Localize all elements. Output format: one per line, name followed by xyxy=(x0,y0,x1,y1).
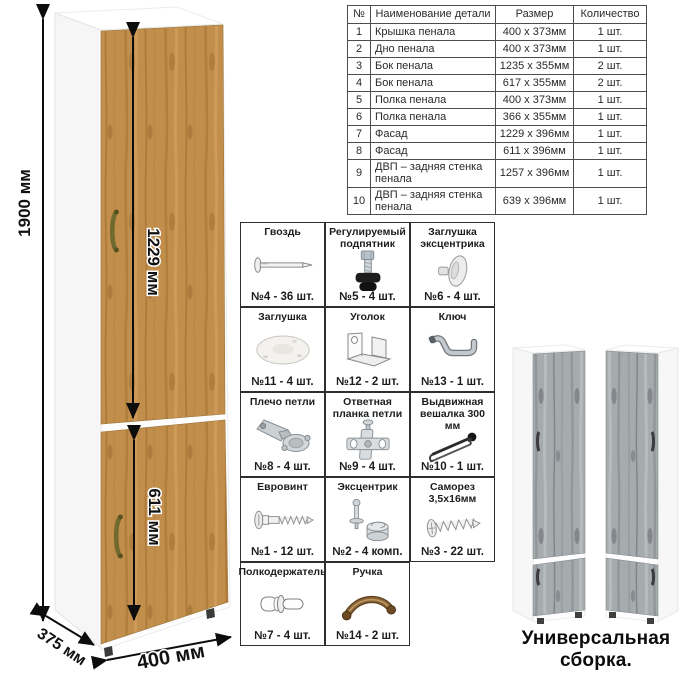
hardware-name: Ключ xyxy=(439,311,467,323)
hinge-plate-icon xyxy=(342,419,394,463)
cell-qty: 1 шт. xyxy=(574,160,647,188)
corner-bracket-icon xyxy=(340,328,396,372)
table-row: 6Полка пенала366 х 355мм1 шт. xyxy=(348,109,647,126)
table-row: 2Дно пенала400 х 373мм1 шт. xyxy=(348,41,647,58)
cabinet-side-panel xyxy=(55,13,101,648)
hardware-count: №10 - 1 шт. xyxy=(421,461,484,474)
hardware-item-cap: Заглушка №11 - 4 шт. xyxy=(240,307,325,392)
table-row: 10ДВП – задняя стенка пенала639 х 396мм1… xyxy=(348,187,647,215)
variant-cabinets xyxy=(495,338,700,638)
cell-name: ДВП – задняя стенка пенала xyxy=(371,187,496,215)
handle-knob xyxy=(118,554,123,559)
cell-number: 6 xyxy=(348,109,371,126)
hardware-count: №1 - 12 шт. xyxy=(251,546,314,559)
hardware-count: №6 - 4 шт. xyxy=(424,291,480,304)
handle-icon xyxy=(337,583,399,625)
cell-size: 400 х 373мм xyxy=(496,92,574,109)
cabinet-body xyxy=(55,7,230,657)
upper-door-label: 1229 мм xyxy=(144,228,163,296)
hardware-count: №13 - 1 шт. xyxy=(421,376,484,389)
nail-icon xyxy=(252,256,314,274)
hardware-item-shelf-pin: Полкодержатель №7 - 4 шт. xyxy=(240,562,325,646)
width-label: 400 мм xyxy=(135,640,206,674)
hardware-count: №7 - 4 шт. xyxy=(254,630,310,643)
hardware-name: Регулируемый подпятник xyxy=(328,226,407,250)
shelf-pin-icon xyxy=(255,591,311,617)
hardware-item-handle: Ручка №14 - 2 шт. xyxy=(325,562,410,646)
cell-size: 1235 х 355мм xyxy=(496,58,574,75)
col-header-size: Размер xyxy=(496,6,574,24)
cell-name: Фасад xyxy=(371,126,496,143)
table-row: 9ДВП – задняя стенка пенала1257 х 396мм1… xyxy=(348,160,647,188)
pullout-hanger-icon xyxy=(423,428,483,466)
cell-number: 3 xyxy=(348,58,371,75)
hardware-name: Уголок xyxy=(350,311,385,323)
cell-size: 400 х 373мм xyxy=(496,24,574,41)
hardware-item-euroscrew: Евровинт №1 - 12 шт. xyxy=(240,477,325,562)
table-row: 7Фасад1229 х 396мм1 шт. xyxy=(348,126,647,143)
handle-knob xyxy=(118,515,123,520)
variant-cabinet-right xyxy=(606,345,678,624)
cell-size: 611 х 396мм xyxy=(496,143,574,160)
cell-qty: 1 шт. xyxy=(574,41,647,58)
table-row: 3Бок пенала1235 х 355мм2 шт. xyxy=(348,58,647,75)
table-row: 1Крышка пенала400 х 373мм1 шт. xyxy=(348,24,647,41)
cell-qty: 1 шт. xyxy=(574,109,647,126)
hardware-count: №9 - 4 шт. xyxy=(339,461,395,474)
hardware-name: Эксцентрик xyxy=(337,481,397,493)
hardware-item-key: Ключ №13 - 1 шт. xyxy=(410,307,495,392)
cell-name: Дно пенала xyxy=(371,41,496,58)
assembly-sheet: 1900 мм 1229 мм 611 мм 375 мм 400 мм № Н… xyxy=(0,0,700,683)
hinge-arm-icon xyxy=(253,414,313,456)
cell-size: 1257 х 396мм xyxy=(496,160,574,188)
cell-qty: 1 шт. xyxy=(574,92,647,109)
hardware-count: №8 - 4 шт. xyxy=(254,461,310,474)
hardware-name: Евровинт xyxy=(257,481,308,493)
cell-number: 7 xyxy=(348,126,371,143)
hardware-name: Гвоздь xyxy=(264,226,301,238)
hardware-name: Саморез 3,5х16мм xyxy=(413,481,492,505)
cell-name: Полка пенала xyxy=(371,92,496,109)
cell-name: Полка пенала xyxy=(371,109,496,126)
cell-number: 1 xyxy=(348,24,371,41)
cell-qty: 2 шт. xyxy=(574,58,647,75)
cam-cap-icon xyxy=(430,251,476,291)
hardware-item-pullout-hanger: Выдвижная вешалка 300 мм №10 - 1 шт. xyxy=(410,392,495,477)
hardware-item-cam-cap: Заглушка эксцентрика №6 - 4 шт. xyxy=(410,222,495,307)
handle-knob xyxy=(114,248,119,253)
cell-qty: 1 шт. xyxy=(574,24,647,41)
cell-size: 639 х 396мм xyxy=(496,187,574,215)
hardware-grid: Гвоздь №4 - 36 шт. Регулируемый подпятни… xyxy=(240,222,495,646)
hardware-name: Заглушка эксцентрика xyxy=(413,226,492,250)
cam-lock-icon xyxy=(342,498,394,542)
handle-knob xyxy=(114,210,119,215)
cell-name: Бок пенала xyxy=(371,58,496,75)
hardware-count: №3 - 22 шт. xyxy=(421,546,484,559)
cell-qty: 1 шт. xyxy=(574,126,647,143)
height-label: 1900 мм xyxy=(15,169,34,237)
cell-qty: 2 шт. xyxy=(574,75,647,92)
cabinet-drawing: 1900 мм 1229 мм 611 мм 375 мм 400 мм xyxy=(0,0,238,683)
hardware-item-cam-lock: Эксцентрик №2 - 4 комп. xyxy=(325,477,410,562)
hardware-name: Плечо петли xyxy=(250,396,315,408)
cell-size: 617 х 355мм xyxy=(496,75,574,92)
cell-name: Фасад xyxy=(371,143,496,160)
cell-number: 5 xyxy=(348,92,371,109)
hardware-item-hinge-arm: Плечо петли №8 - 4 шт. xyxy=(240,392,325,477)
hardware-count: №5 - 4 шт. xyxy=(339,291,395,304)
hardware-item-corner-bracket: Уголок №12 - 2 шт. xyxy=(325,307,410,392)
col-header-number: № xyxy=(348,6,371,24)
col-header-qty: Количество xyxy=(574,6,647,24)
cell-number: 9 xyxy=(348,160,371,188)
hardware-count: №2 - 4 комп. xyxy=(332,546,402,559)
cell-name: Бок пенала xyxy=(371,75,496,92)
cell-number: 8 xyxy=(348,143,371,160)
euroscrew-icon xyxy=(252,506,314,534)
col-header-name: Наименование детали xyxy=(371,6,496,24)
variant-cabinet-left xyxy=(513,345,585,624)
table-row: 5Полка пенала400 х 373мм1 шт. xyxy=(348,92,647,109)
hardware-name: Полкодержатель xyxy=(238,566,326,578)
adjustable-foot-icon xyxy=(350,250,386,292)
key-icon xyxy=(425,331,481,369)
hardware-name: Ручка xyxy=(352,566,382,578)
hardware-count: №4 - 36 шт. xyxy=(251,291,314,304)
lower-door-label: 611 мм xyxy=(145,488,164,545)
cell-size: 1229 х 396мм xyxy=(496,126,574,143)
table-row: 8Фасад611 х 396мм1 шт. xyxy=(348,143,647,160)
hardware-item-self-tapping-screw: Саморез 3,5х16мм №3 - 22 шт. xyxy=(410,477,495,562)
cell-size: 400 х 373мм xyxy=(496,41,574,58)
cell-qty: 1 шт. xyxy=(574,187,647,215)
hardware-item-hinge-plate: Ответная планка петли №9 - 4 шт. xyxy=(325,392,410,477)
hardware-name: Заглушка xyxy=(258,311,307,323)
hardware-name: Ответная планка петли xyxy=(328,396,407,420)
variants-caption: Универсальная сборка. xyxy=(492,628,700,672)
cell-size: 366 х 355мм xyxy=(496,109,574,126)
hardware-item-adjustable-foot: Регулируемый подпятник №5 - 4 шт. xyxy=(325,222,410,307)
upper-door xyxy=(101,25,225,424)
hardware-count: №14 - 2 шт. xyxy=(336,630,399,643)
cell-qty: 1 шт. xyxy=(574,143,647,160)
parts-table: № Наименование детали Размер Количество … xyxy=(347,5,647,215)
cell-number: 2 xyxy=(348,41,371,58)
hardware-count: №12 - 2 шт. xyxy=(336,376,399,389)
hardware-count: №11 - 4 шт. xyxy=(251,376,313,389)
table-row: 4Бок пенала617 х 355мм2 шт. xyxy=(348,75,647,92)
self-tapping-screw-icon xyxy=(424,510,482,542)
cell-name: ДВП – задняя стенка пенала xyxy=(371,160,496,188)
hardware-item-nail: Гвоздь №4 - 36 шт. xyxy=(240,222,325,307)
cap-icon xyxy=(254,333,312,367)
table-header-row: № Наименование детали Размер Количество xyxy=(348,6,647,24)
cell-number: 10 xyxy=(348,187,371,215)
cell-number: 4 xyxy=(348,75,371,92)
cell-name: Крышка пенала xyxy=(371,24,496,41)
